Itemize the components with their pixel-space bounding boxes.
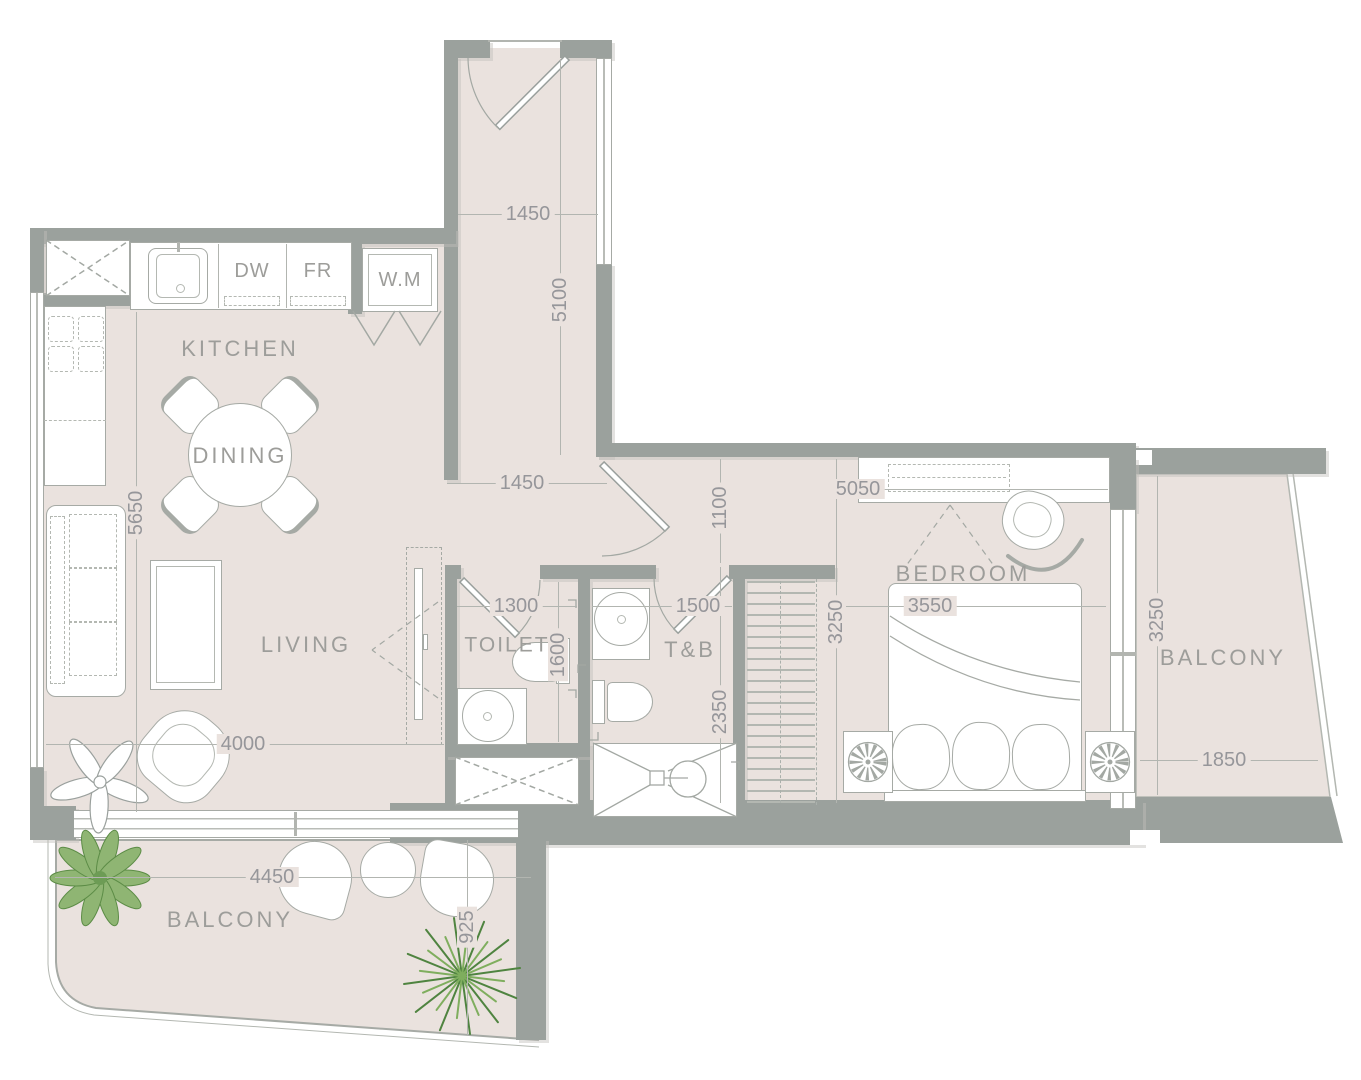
corridor-east-window <box>596 58 612 265</box>
dim-balcony-bottom-w: 4450 <box>246 867 299 887</box>
wardrobe-open-edge <box>816 579 817 805</box>
south-band-notch <box>1130 830 1160 845</box>
wall-toilet-tb-divider <box>578 579 590 807</box>
dim-balcony-right-w: 1850 <box>1198 750 1251 770</box>
stove-burner-2 <box>78 316 104 342</box>
dim-bed-w: 3550 <box>904 596 957 616</box>
dim-line-corridor-h <box>560 60 561 455</box>
service-shaft <box>46 240 130 296</box>
dim-corridor-h: 5100 <box>550 274 570 327</box>
toilet-basin-drain <box>483 712 492 721</box>
bed-pillow-1 <box>890 723 951 792</box>
label-kitchen: KITCHEN <box>181 338 299 360</box>
sofa-cushion-1 <box>69 514 117 568</box>
living-west-window <box>30 292 44 768</box>
armchair-cushion <box>143 714 225 796</box>
label-living: LIVING <box>261 634 351 656</box>
tv-screen <box>414 568 423 720</box>
nightstand-right <box>1085 731 1135 793</box>
wall-corridor-right <box>596 263 612 457</box>
desk-chair-cushion <box>1009 498 1056 542</box>
label-toilet: TOILET <box>464 635 549 656</box>
bedroom-window-divider <box>1110 652 1136 656</box>
dishwasher-vent <box>224 296 280 306</box>
floor-plan: 1450 5100 1450 1100 5050 5650 1300 1500 … <box>0 0 1361 1080</box>
dim-tb-h: 2350 <box>710 686 730 739</box>
dim-bedroom-top: 5050 <box>832 479 885 499</box>
stove-burner-1 <box>48 316 74 342</box>
wall-southwest-block <box>30 806 76 840</box>
desk-item-line <box>892 477 1006 478</box>
dim-toilet-w: 1300 <box>490 596 543 616</box>
balcony-right-railing <box>1293 473 1337 796</box>
wall-balcony-bottom-right <box>516 838 546 1040</box>
label-washing-machine: W.M <box>379 270 422 290</box>
desk-item <box>888 464 1010 492</box>
balcony-side-table <box>360 842 416 898</box>
tv-mount <box>423 634 428 650</box>
wall-toilet-south <box>445 743 590 757</box>
dim-hall-w: 1450 <box>496 473 549 493</box>
stove-burner-4 <box>78 346 104 372</box>
dim-toilet-h: 1600 <box>548 629 568 682</box>
dim-line-bed-w <box>834 606 1106 607</box>
dim-kitchen-h: 5650 <box>126 487 146 540</box>
counter-separator-2 <box>286 244 287 308</box>
coffee-table-inner <box>156 566 215 683</box>
wardrobe-center-rail <box>780 581 781 803</box>
wardrobe <box>747 581 815 803</box>
balcony-right-south-wall <box>1136 797 1343 843</box>
dim-balcony-bottom-h: 925 <box>457 906 477 947</box>
tb-wc-bowl <box>607 682 653 722</box>
label-bedroom: BEDROOM <box>896 563 1031 585</box>
bed-pillow-3 <box>1011 723 1071 791</box>
dim-balcony-right-h: 3250 <box>1147 594 1167 647</box>
dim-living-w: 4000 <box>217 734 270 754</box>
label-dining: DINING <box>193 445 288 467</box>
wall-balcony-right-north <box>1126 448 1326 474</box>
label-dishwasher: DW <box>234 261 269 281</box>
counter-split-line <box>44 420 106 421</box>
shower-tray <box>593 743 737 817</box>
dim-bedroom-h: 3250 <box>826 596 846 649</box>
floor-corridor <box>458 48 598 460</box>
entry-threshold-line <box>488 40 562 42</box>
label-fridge: FR <box>304 261 333 281</box>
wall-tb-wardrobe-north <box>729 565 835 579</box>
sliding-door-divider <box>294 812 297 836</box>
wall-bedroom-east-block <box>1110 457 1136 511</box>
tb-wc-tank <box>592 680 605 724</box>
bed-pillow-2 <box>951 721 1011 791</box>
fridge-vent <box>290 296 346 306</box>
kitchen-sink-drain <box>176 284 185 293</box>
coffee-table <box>150 560 222 690</box>
wall-west-top <box>30 228 44 292</box>
balcony-north-window-notch <box>1136 450 1152 465</box>
nightstand-left <box>843 731 893 793</box>
stove-burner-3 <box>48 346 74 372</box>
wall-toilet-north-b <box>540 565 656 579</box>
storage-box <box>455 757 579 805</box>
sofa-cushion-3 <box>69 622 117 676</box>
label-tb: T&B <box>664 639 716 661</box>
counter-separator-1 <box>218 244 219 308</box>
wall-toilet-north-a <box>445 565 461 579</box>
dim-corridor-w: 1450 <box>502 204 555 224</box>
dim-line-kitchen-h <box>136 312 137 812</box>
wall-bedroom-north <box>596 443 1136 457</box>
label-balcony-right: BALCONY <box>1160 647 1286 669</box>
wall-corridor-left <box>444 56 458 480</box>
dim-tb-w: 1500 <box>672 596 725 616</box>
tb-basin-drain <box>617 615 626 624</box>
sofa-cushion-2 <box>69 568 117 622</box>
bed-headboard <box>884 790 1086 802</box>
sofa-backrest <box>50 516 65 684</box>
label-balcony-bottom: BALCONY <box>167 909 293 931</box>
dim-hall-h: 1100 <box>710 482 730 533</box>
wall-entry-right-jamb <box>560 40 612 58</box>
kitchen-faucet <box>177 242 180 252</box>
sofa <box>46 505 126 697</box>
